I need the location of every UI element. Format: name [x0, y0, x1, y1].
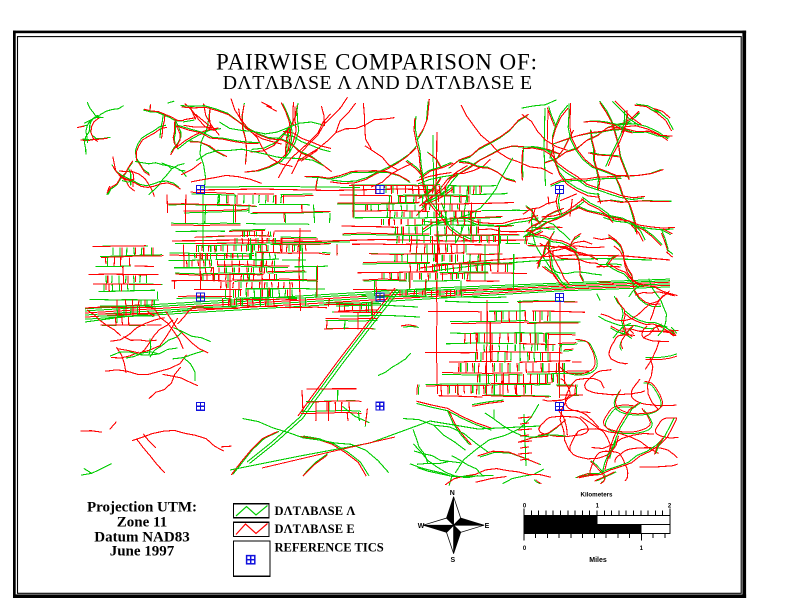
svg-text:W: W [418, 523, 425, 530]
svg-text:S: S [450, 557, 455, 564]
svg-text:1: 1 [640, 546, 644, 552]
svg-text:0: 0 [523, 546, 527, 552]
svg-text:2: 2 [668, 503, 672, 509]
svg-text:Miles: Miles [589, 557, 607, 564]
svg-text:DΛTΛBΛSE Λ: DΛTΛBΛSE Λ [275, 504, 356, 518]
svg-text:Projection UTM:: Projection UTM: [87, 500, 197, 516]
svg-text:0: 0 [523, 503, 527, 509]
svg-text:June 1997: June 1997 [110, 543, 175, 559]
svg-text:REFERENCE TICS: REFERENCE TICS [275, 541, 384, 555]
svg-text:Kilometers: Kilometers [581, 491, 614, 498]
svg-text:DΛTΛBΛSE E: DΛTΛBΛSE E [275, 522, 355, 536]
svg-text:Zone 11: Zone 11 [117, 515, 167, 531]
svg-text:DΛTΛBΛSE Λ ΛND DΛTΛBΛSE E: DΛTΛBΛSE Λ ΛND DΛTΛBΛSE E [223, 72, 533, 94]
svg-text:E: E [485, 523, 490, 530]
svg-text:1: 1 [596, 503, 600, 509]
svg-text:PAIRWISE COMPARISON OF:: PAIRWISE COMPARISON OF: [216, 49, 538, 74]
svg-text:N: N [450, 490, 455, 497]
